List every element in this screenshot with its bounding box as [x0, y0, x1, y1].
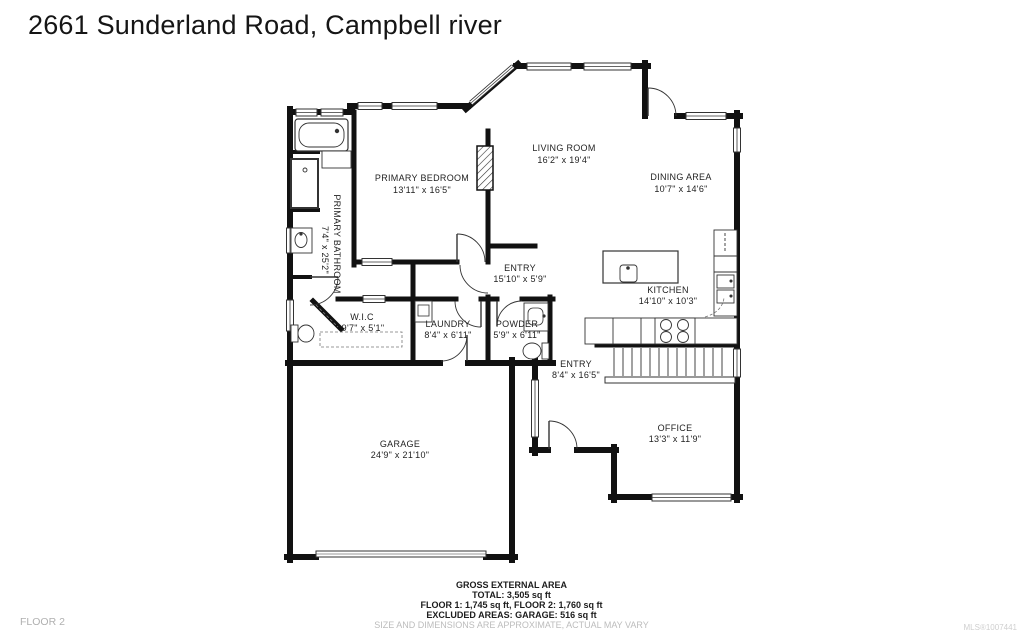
stair-rail	[605, 377, 735, 383]
label-garage: GARAGE	[380, 439, 420, 449]
label-garage-dims: 24'9" x 21'10"	[371, 450, 430, 460]
area-summary: GROSS EXTERNAL AREA TOTAL: 3,505 sq ft F…	[0, 580, 1023, 630]
label-powder: POWDER	[496, 319, 539, 329]
label-laundry-dims: 8'4" x 6'11"	[424, 330, 471, 340]
fireplace	[477, 146, 493, 190]
bedroom-door	[457, 234, 488, 293]
label-living-room: LIVING ROOM	[532, 143, 595, 153]
label-entry-hall-dims: 15'10" x 5'9"	[493, 274, 546, 284]
label-dining-area: DINING AREA	[650, 172, 711, 182]
label-kitchen-dims: 14'10" x 10'3"	[639, 296, 698, 306]
label-wic-dims: 9'7" x 5'1"	[342, 323, 385, 333]
label-primary-bedroom-dims: 13'11" x 16'5"	[393, 185, 451, 195]
label-entry-hall: ENTRY	[504, 263, 536, 273]
label-office-dims: 13'3" x 11'9"	[649, 434, 702, 444]
kitchen-right-counter	[714, 230, 737, 316]
total-area: TOTAL: 3,505 sq ft	[0, 590, 1023, 600]
label-dining-area-dims: 10'7" x 14'6"	[654, 184, 707, 194]
floor-plan: PRIMARY BEDROOM 13'11" x 16'5" PRIMARY B…	[0, 0, 1023, 639]
label-powder-dims: 5'9" x 6'11"	[493, 330, 540, 340]
gross-external-area: GROSS EXTERNAL AREA	[0, 580, 1023, 590]
label-wic: W.I.C	[350, 312, 374, 322]
linen-closet	[322, 151, 351, 168]
patio-door	[648, 88, 676, 116]
mls-number: MLS®1007441	[964, 623, 1018, 632]
label-living-room-dims: 16'2" x 19'4"	[537, 155, 590, 165]
label-kitchen: KITCHEN	[647, 285, 689, 295]
label-primary-bathroom-dims: 7'4" x 25'2"	[320, 226, 330, 274]
toilet-bathroom	[291, 325, 314, 342]
excluded-areas: EXCLUDED AREAS: GARAGE: 516 sq ft	[0, 610, 1023, 620]
floor-number-label: FLOOR 2	[20, 616, 65, 628]
kitchen-island	[603, 251, 678, 283]
label-office: OFFICE	[658, 423, 693, 433]
vanity-sink	[291, 228, 312, 253]
label-laundry: LAUNDRY	[426, 319, 471, 329]
stairs	[605, 348, 735, 383]
floor-areas: FLOOR 1: 1,745 sq ft, FLOOR 2: 1,760 sq …	[0, 600, 1023, 610]
bay-window	[470, 65, 515, 105]
label-entry-front: ENTRY	[560, 359, 592, 369]
label-entry-front-dims: 8'4" x 16'5"	[552, 370, 600, 380]
label-primary-bathroom: PRIMARY BATHROOM	[332, 194, 342, 293]
bathtub	[295, 119, 348, 151]
label-primary-bedroom: PRIMARY BEDROOM	[375, 173, 469, 183]
front-door	[549, 421, 577, 449]
garage-door	[316, 551, 486, 557]
disclaimer: SIZE AND DIMENSIONS ARE APPROXIMATE, ACT…	[0, 620, 1023, 630]
shower	[291, 159, 318, 208]
toilet-powder	[523, 343, 549, 359]
